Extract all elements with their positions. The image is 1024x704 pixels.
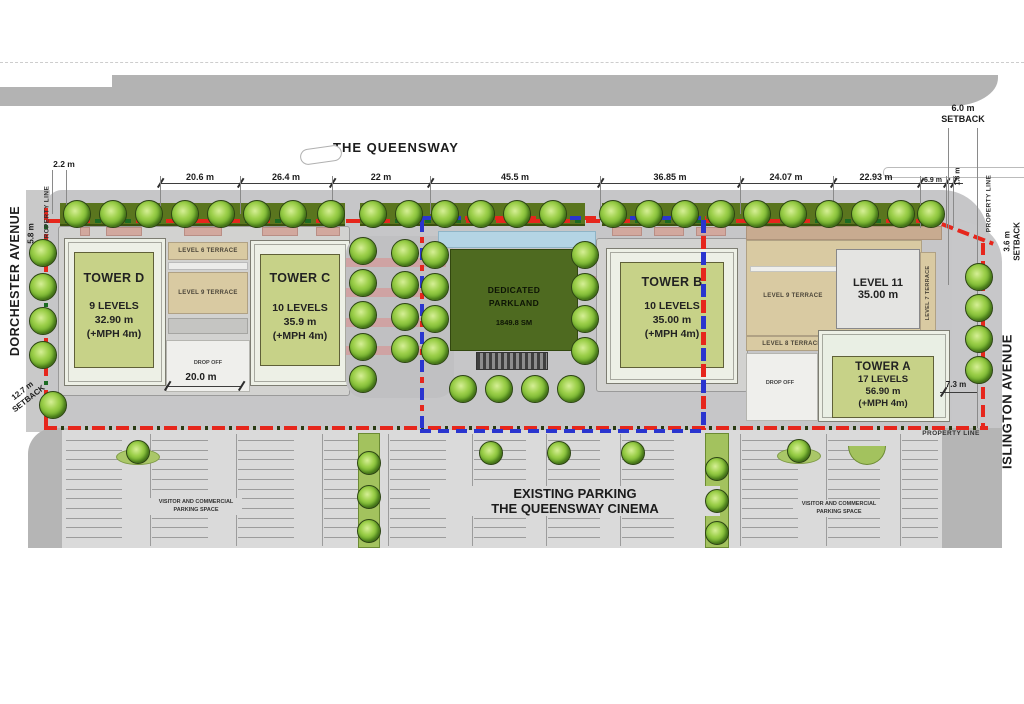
level-6-terrace: LEVEL 6 TERRACE [168,242,248,260]
parking-stall-line [238,508,294,509]
dimension-label: 26.4 m [256,172,316,182]
parking-stall-line [742,469,798,470]
parking-stall-line [902,527,938,528]
terrace-lower-strip [168,318,248,334]
tree-icon [349,237,377,265]
parking-stall-line [902,498,938,499]
east-arcade-strip [746,226,942,240]
parking-stall-line [66,537,122,538]
parking-stall-line [828,537,880,538]
parking-stall-line [238,440,294,441]
level-11-name: LEVEL 11 [853,277,903,289]
tree-icon [359,200,387,228]
tree-icon [539,200,567,228]
level-11-block: LEVEL 11 35.00 m [836,249,920,329]
tree-icon [779,200,807,228]
parking-stall-line [66,518,122,519]
visitor-parking-label: VISITOR AND COMMERCIAL PARKING SPACE [793,500,885,517]
parking-stall-line [622,469,674,470]
tree-icon [391,303,419,331]
parking-stall-line [548,469,600,470]
parking-stall-line [390,527,446,528]
tree-icon [965,294,993,322]
north-road-band-left [0,87,114,106]
parking-stall-line [238,450,294,451]
parking-stall-line [390,479,446,480]
tree-icon [349,365,377,393]
tower-c-height: 35.9 m [272,315,327,329]
tower-c-name: TOWER C [270,271,331,285]
tree-icon [126,440,150,464]
parking-stall-line [828,440,880,441]
parking-stall-line [828,527,880,528]
dotted-guideline [0,62,1024,63]
tree-icon [467,200,495,228]
parking-stall-line [474,479,526,480]
terrace-white-bar [750,266,838,272]
queensway-cinema-title: THE QUEENSWAY CINEMA [430,501,720,516]
east-drop-off-label: DROP OFF [752,380,808,386]
parking-aisle-line [322,434,323,546]
parking-stall-line [742,498,798,499]
extension-line [52,170,53,214]
tower-a-height: 56.90 m [858,386,908,398]
parking-stall-line [66,508,122,509]
parking-stall-line [902,440,938,441]
tree-icon [599,200,627,228]
north-setback-label: 6.0 m SETBACK [932,103,994,126]
tree-icon [357,519,381,543]
parking-stall-line [238,489,294,490]
tree-icon [503,200,531,228]
parking-stall-line [152,459,208,460]
phase-line-south-dashed [420,429,706,433]
tree-icon [635,200,663,228]
tree-icon [243,200,271,228]
parkland-area: 1849.8 SM [496,318,532,327]
tree-icon [317,200,345,228]
parking-stall-line [66,489,122,490]
tree-icon [707,200,735,228]
top-dimension-line [160,183,963,184]
tree-icon [917,200,945,228]
tree-icon [815,200,843,228]
east-setback-label: 3.6 m SETBACK [1003,211,1024,271]
parking-stall-line [152,489,208,490]
balcony-bar [316,227,340,236]
tree-icon [485,375,513,403]
parking-stall-line [152,479,208,480]
parking-stall-line [238,537,294,538]
west-drop-off-area [166,340,250,392]
parking-stall-line [390,537,446,538]
parking-stall-line [474,537,526,538]
parking-stall-line [474,440,526,441]
north-road-band [112,75,998,106]
tree-icon [887,200,915,228]
tower-c-footprint: TOWER C 10 LEVELS 35.9 m (+MPH 4m) [260,254,340,366]
tower-c-mph: (+MPH 4m) [272,329,327,343]
parking-stall-line [742,440,798,441]
level-7-terrace-label: LEVEL 7 TERRACE [924,258,932,328]
parking-stall-line [238,498,294,499]
tower-b-mph: (+MPH 4m) [644,327,699,341]
east-drop-off-area [746,353,818,421]
parking-stall-line [66,450,122,451]
tower-b-levels: 10 LEVELS [644,299,699,313]
water-feature [438,231,596,248]
tree-icon [479,441,503,465]
tree-icon [571,241,599,269]
parking-stall-line [828,469,880,470]
parking-stall-line [238,518,294,519]
parking-stall-line [474,527,526,528]
parking-stall-line [902,479,938,480]
parking-stall-line [152,527,208,528]
parking-aisle-line [388,434,389,546]
tree-icon [787,439,811,463]
parking-stall-line [902,469,938,470]
tree-icon [421,305,449,333]
balcony-bar [184,227,222,236]
tower-d-levels: 9 LEVELS [87,299,142,313]
tree-icon [521,375,549,403]
parking-stall-line [152,537,208,538]
parking-stall-line [390,469,446,470]
tree-icon [421,241,449,269]
tree-icon [391,335,419,363]
tree-icon [851,200,879,228]
tree-icon [29,239,57,267]
tree-icon [29,273,57,301]
tree-icon [63,200,91,228]
parking-stall-line [902,518,938,519]
parking-stall-line [902,489,938,490]
dimension-label: 22.93 m [846,172,906,182]
tree-icon [357,451,381,475]
visitor-parking-label: VISITOR AND COMMERCIAL PARKING SPACE [150,498,242,515]
parking-stall-line [66,469,122,470]
setback-line [948,128,949,285]
terrace-gap [168,262,248,270]
tree-icon [349,333,377,361]
tree-icon [421,273,449,301]
tree-icon [171,200,199,228]
tower-a-levels: 17 LEVELS [858,374,908,386]
parking-aisle-line [826,434,827,546]
parkland-label-line1: DEDICATED [488,284,541,297]
parking-stall-line [622,527,674,528]
extension-line [740,176,741,214]
tower-b-footprint: TOWER B 10 LEVELS 35.00 m (+MPH 4m) [620,262,724,368]
tree-icon [279,200,307,228]
tower-a-mph: (+MPH 4m) [858,398,908,410]
tree-icon [99,200,127,228]
dimension-label: 45.5 m [485,172,545,182]
tree-icon [571,337,599,365]
parking-stall-line [238,459,294,460]
parking-stall-line [390,450,446,451]
tree-icon [671,200,699,228]
balcony-bar [80,227,90,236]
parking-stall-line [238,469,294,470]
parking-stall-line [902,459,938,460]
parking-stall-line [622,479,674,480]
tower-a-name: TOWER A [855,361,911,373]
tower-d-footprint: TOWER D 9 LEVELS 32.90 m (+MPH 4m) [74,252,154,368]
parking-stall-line [742,479,798,480]
extension-line [240,176,241,214]
tower-d-mph: (+MPH 4m) [87,327,142,341]
balcony-bar [262,227,298,236]
parking-stall-line [828,489,880,490]
tree-icon [207,200,235,228]
property-line-label: PROPERTY LINE [986,166,993,242]
parking-stall-line [828,518,880,519]
phase-line-mid-dashed [701,220,706,430]
tree-icon [349,269,377,297]
property-line-label: PROPERTY LINE [913,430,989,437]
site-plan: THE QUEENSWAY EXISTING PARKING THE QUEEN… [0,0,1024,704]
property-gap-dimension: 2.2 m [44,159,84,169]
tree-icon [135,200,163,228]
parking-stall-line [152,440,208,441]
tree-icon [29,341,57,369]
dimension-label: 36.85 m [640,172,700,182]
tower-d-height: 32.90 m [87,313,142,327]
parking-stall-line [390,440,446,441]
parking-stall-line [548,527,600,528]
tree-icon [349,301,377,329]
parking-stall-line [474,518,526,519]
parking-stall-line [66,440,122,441]
tree-icon [449,375,477,403]
tree-icon [705,521,729,545]
dedicated-parkland: DEDICATED PARKLAND 1849.8 SM [450,249,578,351]
tree-icon [29,307,57,335]
parking-stall-line [622,537,674,538]
parking-aisle-line [900,434,901,546]
parking-stall-line [238,527,294,528]
tree-icon [705,457,729,481]
tree-icon [357,485,381,509]
parkland-label-line2: PARKLAND [488,297,541,310]
tree-icon [571,273,599,301]
tree-icon [547,441,571,465]
level-11-height: 35.00 m [858,289,898,301]
parking-stall-line [548,479,600,480]
parking-stall-line [742,518,798,519]
islington-street-label: ISLINGTON AVENUE [1000,322,1015,482]
dimension-label-1-8: 1.8 m [955,161,962,193]
parking-stall-line [390,459,446,460]
tree-icon [557,375,585,403]
west-drop-off-label: DROP OFF [180,360,236,366]
existing-parking-title: EXISTING PARKING [430,486,720,501]
tree-icon [621,441,645,465]
tree-icon [431,200,459,228]
parking-stall-line [742,508,798,509]
parking-aisle-line [236,434,237,546]
tower-a-footprint: TOWER A 17 LEVELS 56.90 m (+MPH 4m) [832,356,934,418]
dorchester-street-label: DORCHESTER AVENUE [8,196,22,366]
parking-stall-line [238,479,294,480]
parking-stall-line [828,479,880,480]
parking-aisle-line [740,434,741,546]
tree-icon [965,325,993,353]
parking-stall-line [742,527,798,528]
parking-stall-line [902,508,938,509]
level-9-terrace-west: LEVEL 9 TERRACE [168,272,248,314]
tree-icon [965,356,993,384]
dimension-label: 20.6 m [170,172,230,182]
tower-a-side-dim-line [940,392,978,393]
parking-stall-line [390,518,446,519]
tree-icon [391,239,419,267]
parking-stall-line [548,537,600,538]
parking-stall-line [152,518,208,519]
tree-icon [395,200,423,228]
tower-b-height: 35.00 m [644,313,699,327]
tree-icon [421,337,449,365]
drop-off-dimension-line [166,386,242,387]
parking-stall-line [622,518,674,519]
balcony-bar [654,227,684,236]
trellis [476,352,548,370]
tower-c-levels: 10 LEVELS [272,301,327,315]
level-9-terrace-east: LEVEL 9 TERRACE [748,290,838,302]
dimension-label: 22 m [351,172,411,182]
parking-stall-line [548,518,600,519]
dimension-label: 24.07 m [756,172,816,182]
parking-stall-line [902,450,938,451]
tower-d-name: TOWER D [84,271,145,285]
balcony-bar [106,227,142,236]
tree-icon [743,200,771,228]
tree-icon [705,489,729,513]
parking-stall-line [152,450,208,451]
drop-off-dimension: 20.0 m [172,372,230,383]
parking-stall-line [66,459,122,460]
parking-stall-line [474,469,526,470]
tree-icon [391,271,419,299]
tree-icon [965,263,993,291]
parking-stall-line [152,469,208,470]
parking-stall-line [66,527,122,528]
islington-south-roadway [940,428,1002,548]
tree-icon [571,305,599,333]
tree-icon [39,391,67,419]
parking-stall-line [66,479,122,480]
tower-b-name: TOWER B [642,275,703,289]
balcony-bar [612,227,642,236]
parking-stall-line [742,537,798,538]
parking-stall-line [742,489,798,490]
parking-stall-line [902,537,938,538]
parking-stall-line [66,498,122,499]
